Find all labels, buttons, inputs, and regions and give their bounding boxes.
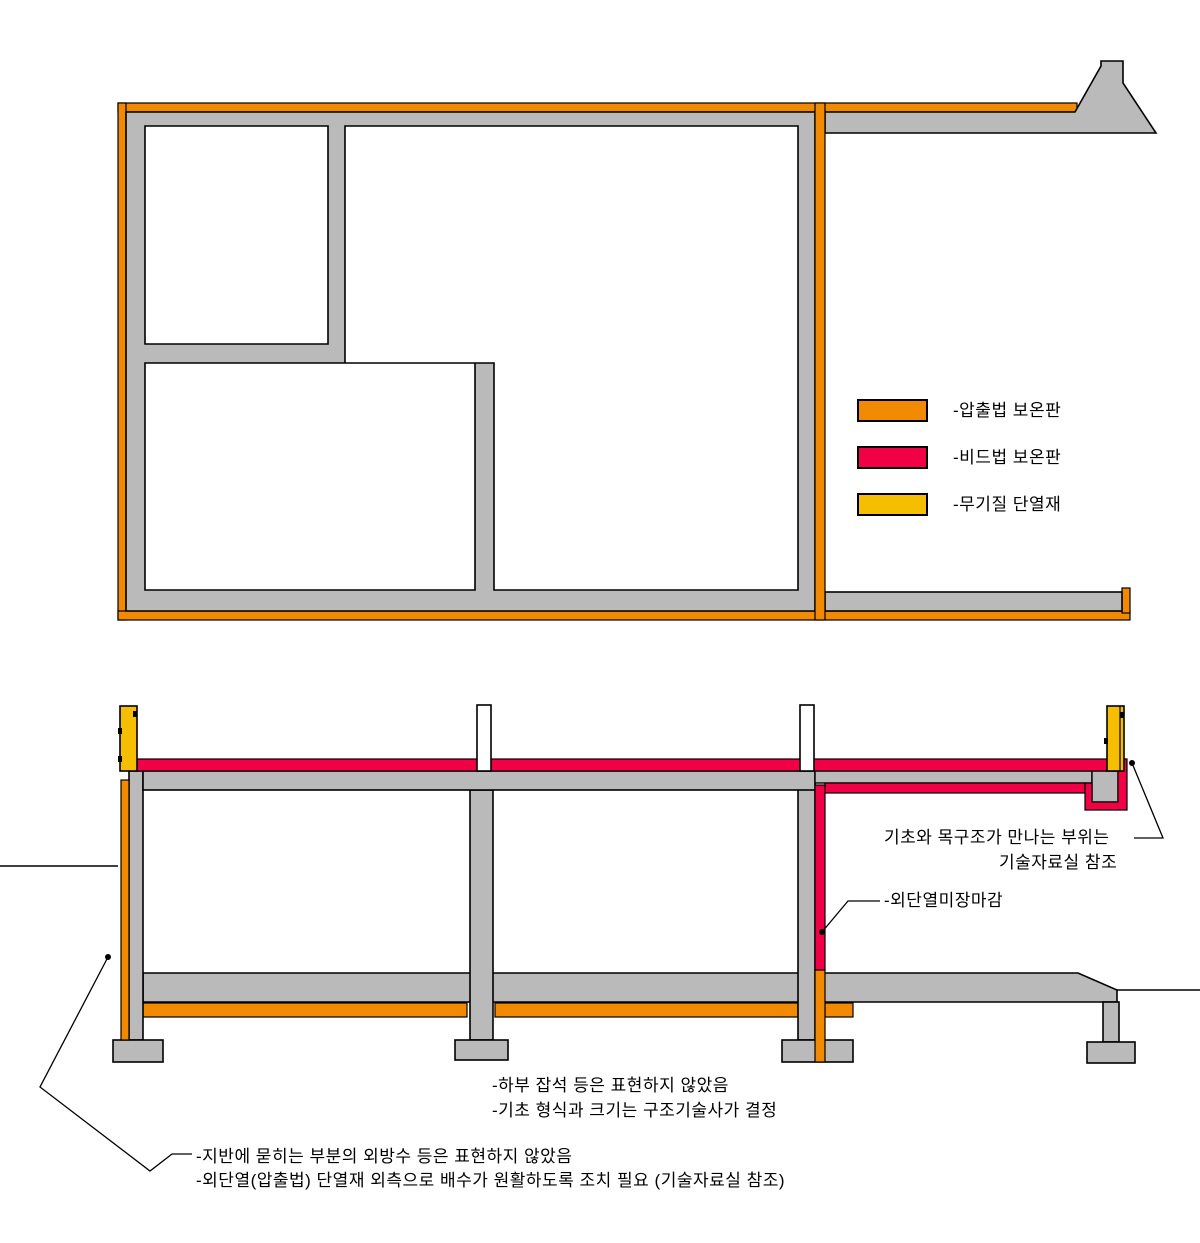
plan-insulation-end-cap xyxy=(1122,588,1130,613)
drawing-canvas: -압출법 보온판 -비드법 보온판 -무기질 단열재 기초와 목구조가 만나는 … xyxy=(0,0,1200,1243)
legend-label-bead: -비드법 보온판 xyxy=(953,448,1061,468)
fastener-tick xyxy=(1104,738,1108,744)
plan-insulation-top xyxy=(118,103,1077,112)
plan-insulation-divider xyxy=(815,103,825,620)
legend-swatch-extruded xyxy=(857,399,928,422)
fastener-tick xyxy=(1120,712,1124,718)
section-edge-support-wall xyxy=(1103,1002,1119,1042)
annotation-foundation-size: -기초 형식과 크기는 구조기술사가 결정 xyxy=(492,1101,777,1121)
plan-insulation-bottom xyxy=(118,611,1130,620)
section-left-wall xyxy=(129,771,143,1040)
plan-terrace-top-wall xyxy=(825,61,1156,133)
footing-interior xyxy=(455,1040,508,1060)
cad-drawing xyxy=(0,0,1200,1243)
legend-label-extruded: -압출법 보온판 xyxy=(953,401,1061,421)
underslab-insulation-2 xyxy=(495,1003,798,1017)
footing-left xyxy=(113,1040,163,1062)
legend-swatch-mineral xyxy=(857,493,928,516)
wall-bead-insulation xyxy=(815,785,825,970)
right-wall-extruded-insulation xyxy=(815,970,825,1062)
annotation-exterior-finish: -외단열미장마감 xyxy=(884,891,1003,911)
section-interior-wall xyxy=(470,790,493,1040)
section-right-wall xyxy=(798,783,815,1040)
underslab-insulation-1 xyxy=(143,1003,467,1017)
leader-exterior-finish xyxy=(819,901,880,935)
fastener-tick xyxy=(133,711,137,717)
plan-terrace-bottom-wall xyxy=(825,592,1122,611)
plan-insulation-left xyxy=(118,103,126,620)
stud-wall-1 xyxy=(477,705,491,771)
fastener-tick xyxy=(118,728,122,734)
floor-bead-insulation xyxy=(137,759,1125,771)
annotation-foundation-wood-1: 기초와 목구조가 만나는 부위는 xyxy=(884,828,1110,848)
section-terrace-slab xyxy=(815,771,1092,783)
plan-view xyxy=(118,61,1156,620)
leader-foundation-wood xyxy=(1129,760,1163,838)
annotation-foundation-wood-2: 기술자료실 참조 xyxy=(999,853,1117,873)
fastener-tick xyxy=(118,756,122,762)
stud-wall-2 xyxy=(800,705,814,771)
plan-walls xyxy=(126,112,815,611)
footing-edge xyxy=(1087,1042,1135,1063)
underslab-insulation-3 xyxy=(825,1003,853,1017)
section-main-slab xyxy=(143,771,815,790)
annotation-rubble: -하부 잡석 등은 표현하지 않았음 xyxy=(492,1076,729,1096)
legend-swatch-bead xyxy=(857,446,928,469)
left-wall-extruded-insulation xyxy=(121,780,129,1040)
section-lower-slab xyxy=(143,973,1117,1002)
annotation-drainage: -외단열(압출법) 단열재 외측으로 배수가 원활하도록 조치 필요 (기술자료… xyxy=(196,1171,785,1191)
section-edge-beam xyxy=(1092,771,1118,802)
legend-label-mineral: -무기질 단열재 xyxy=(953,495,1061,515)
terrace-under-insulation xyxy=(825,783,1085,793)
annotation-waterproofing: -지반에 묻히는 부분의 외방수 등은 표현하지 않았음 xyxy=(196,1147,572,1167)
